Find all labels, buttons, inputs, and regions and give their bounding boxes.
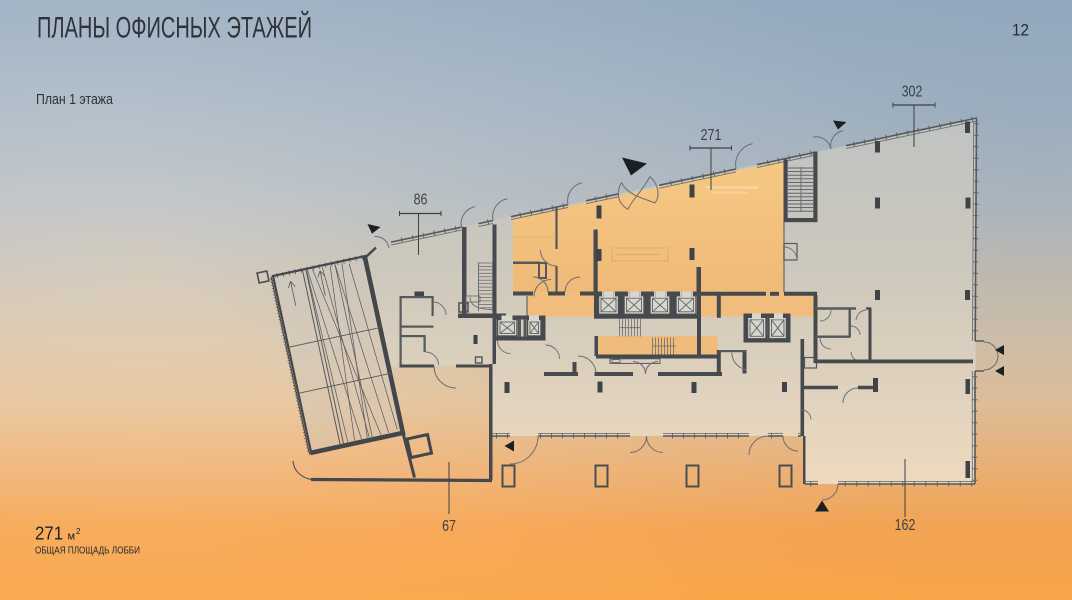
svg-text:12: 12 <box>1012 21 1029 40</box>
svg-text:271: 271 <box>35 523 63 544</box>
svg-text:План 1 этажа: План 1 этажа <box>36 91 113 107</box>
svg-text:162: 162 <box>895 517 916 535</box>
svg-text:67: 67 <box>442 518 456 536</box>
svg-text:ПЛАНЫ ОФИСНЫХ ЭТАЖЕЙ: ПЛАНЫ ОФИСНЫХ ЭТАЖЕЙ <box>37 9 312 44</box>
svg-text:302: 302 <box>902 83 923 101</box>
svg-text:ОБЩАЯ ПЛОЩАДЬ ЛОББИ: ОБЩАЯ ПЛОЩАДЬ ЛОББИ <box>35 545 140 556</box>
svg-text:271: 271 <box>701 127 722 145</box>
svg-text:м: м <box>68 531 76 543</box>
svg-text:86: 86 <box>414 191 428 209</box>
svg-text:2: 2 <box>76 527 81 536</box>
